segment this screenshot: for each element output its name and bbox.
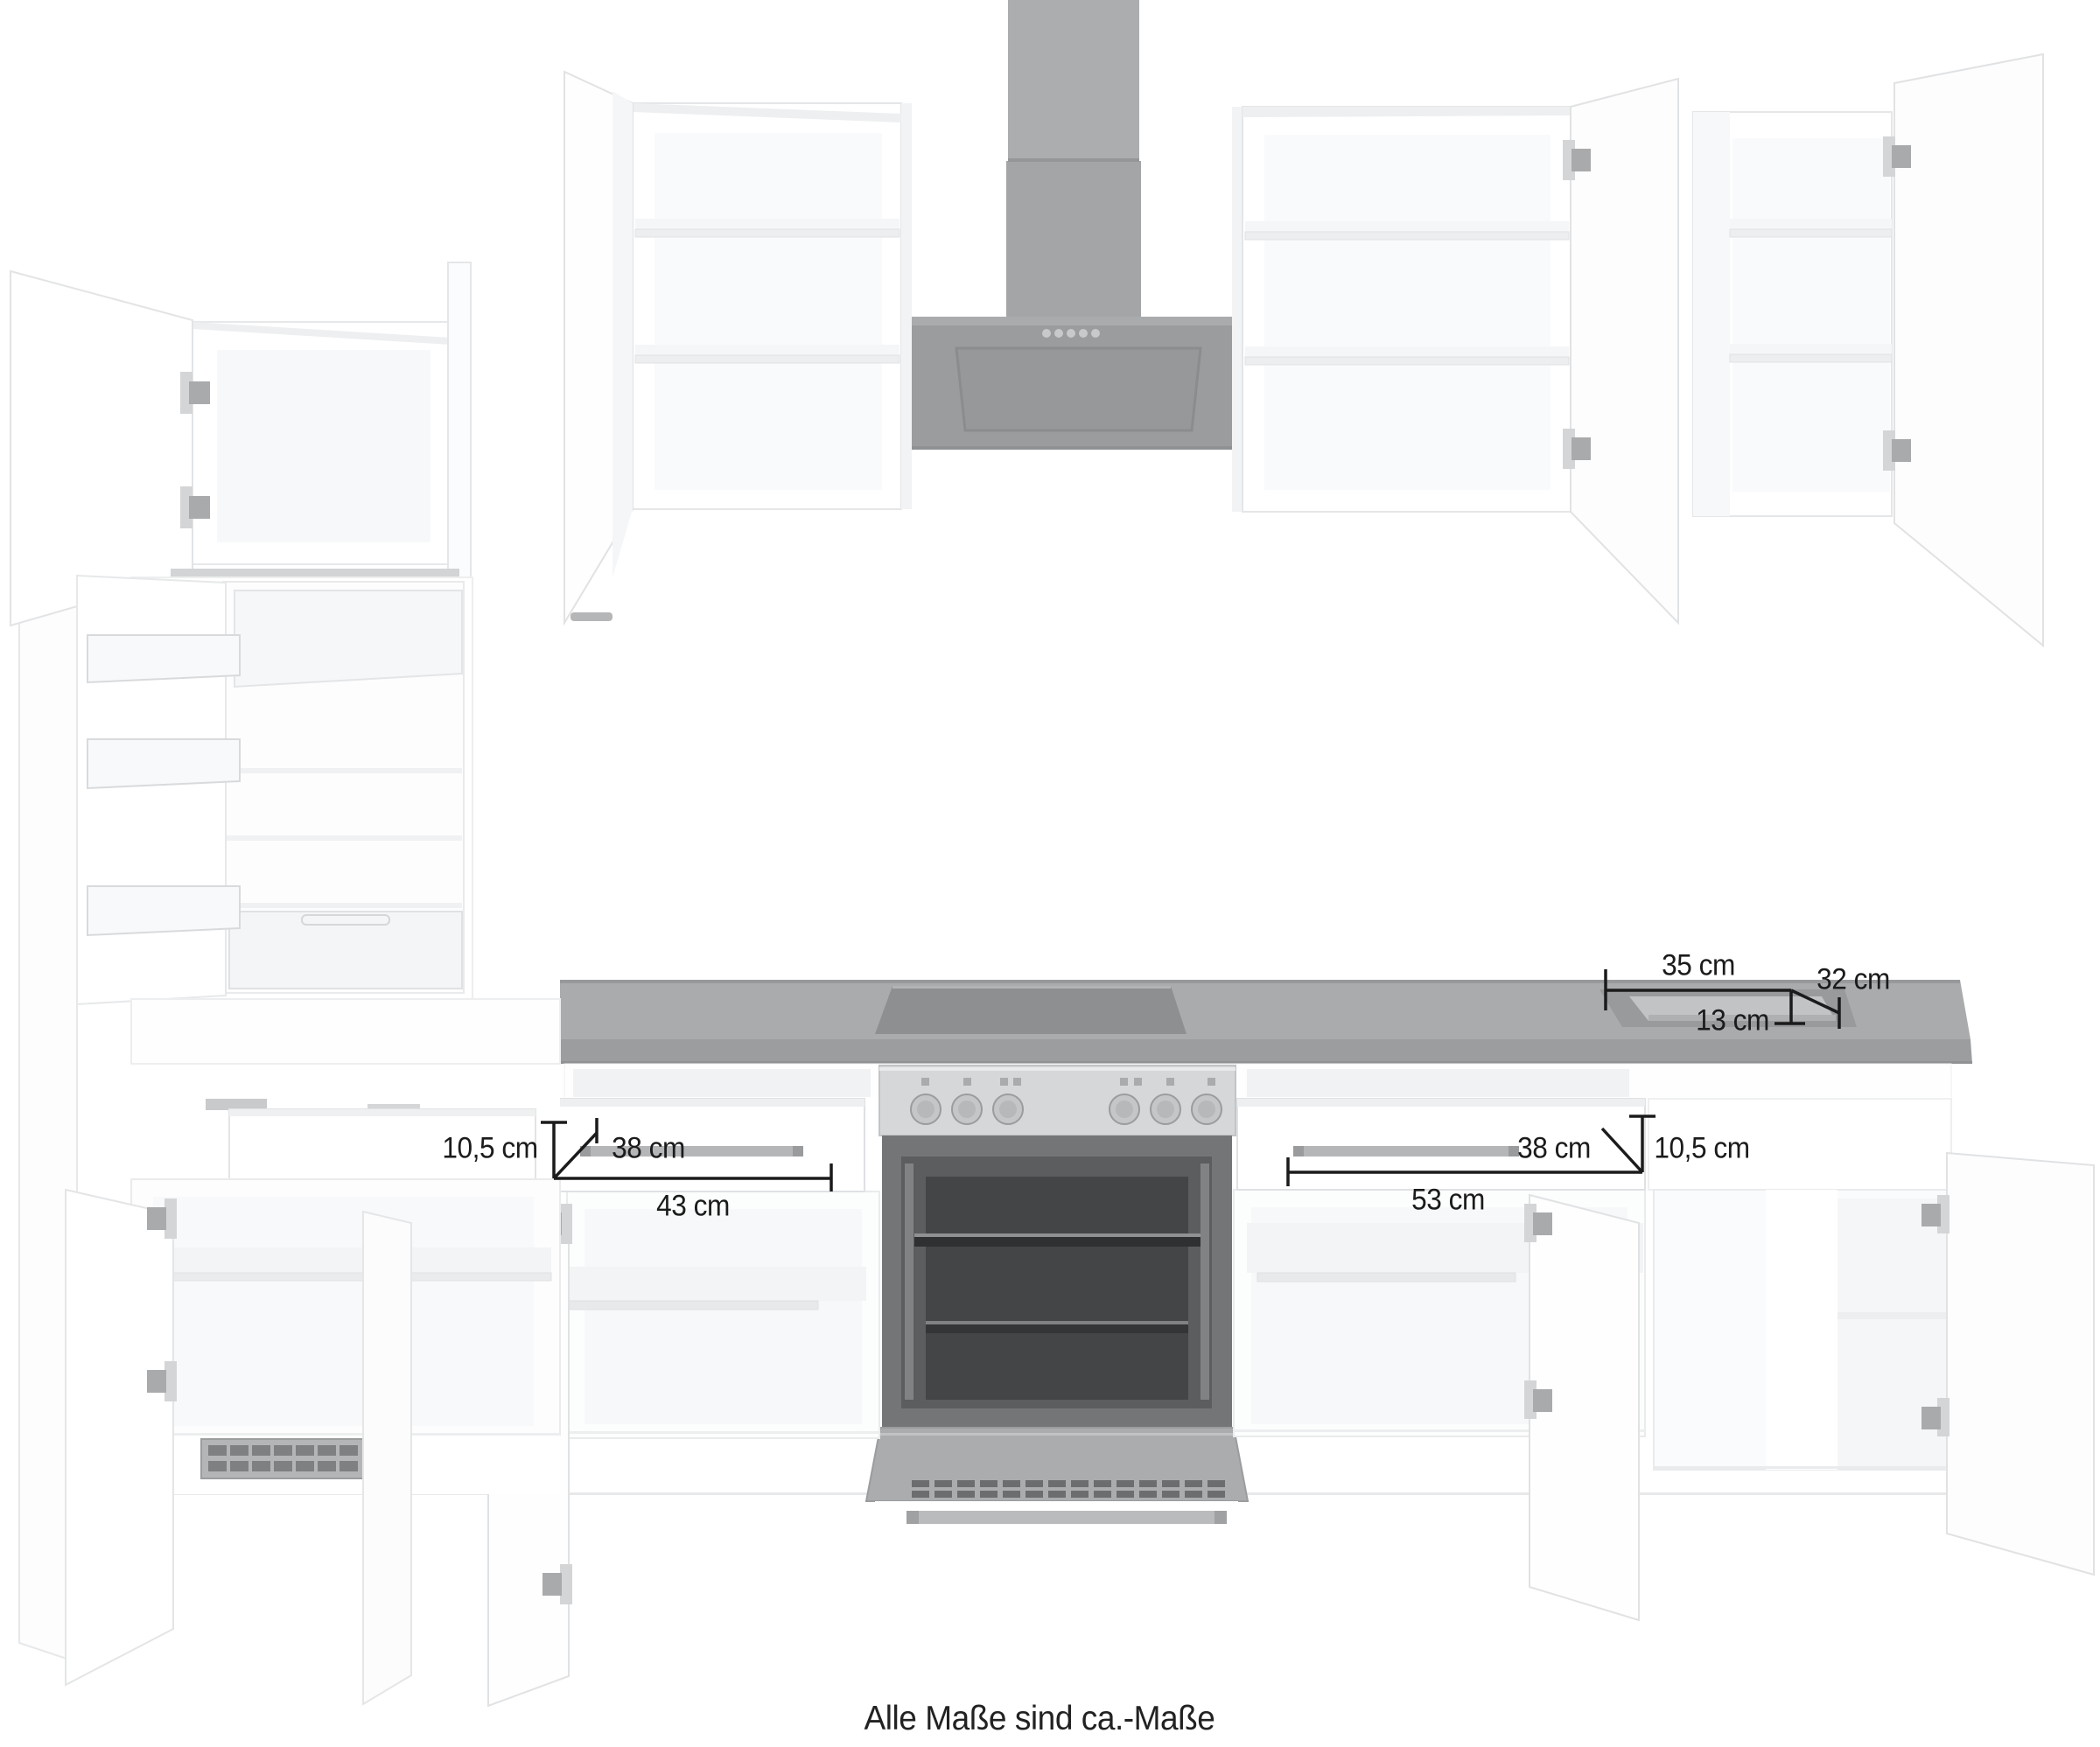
dim-label-left-front-width: 43 cm bbox=[656, 1190, 730, 1224]
knob bbox=[993, 1094, 1023, 1124]
open-door-edge bbox=[363, 1212, 411, 1704]
freezer-compartment bbox=[234, 590, 462, 687]
dim-label-right-handle: 38 cm bbox=[1517, 1132, 1591, 1166]
dim-label-right-front-height: 10,5 cm bbox=[1654, 1132, 1749, 1166]
shelf bbox=[1257, 1273, 1515, 1282]
open-door bbox=[1894, 54, 2043, 646]
shelf bbox=[1245, 232, 1569, 240]
cabinet-interior bbox=[153, 1197, 534, 1426]
knob bbox=[1192, 1094, 1221, 1124]
kitchen-illustration bbox=[0, 0, 2100, 1747]
product-image: 35 cm 32 cm 13 cm 10,5 cm 38 cm 43 cm 38… bbox=[0, 0, 2100, 1747]
counter-front-edge bbox=[535, 1039, 1972, 1064]
fridge bbox=[77, 576, 472, 1004]
sink-base-cabinet bbox=[1648, 1099, 2094, 1575]
cabinet-interior bbox=[1264, 135, 1550, 490]
oven-rack bbox=[914, 1237, 1200, 1247]
range-hood bbox=[890, 0, 1258, 450]
dim-label-left-handle: 38 cm bbox=[612, 1132, 685, 1166]
wall-cabinet-left bbox=[564, 72, 912, 623]
cabinet-interior bbox=[584, 1209, 862, 1424]
fridge-shelf bbox=[226, 768, 462, 773]
tall-cabinet-fridge-unit bbox=[10, 262, 560, 1704]
dim-label-sink-width: 35 cm bbox=[1662, 949, 1735, 983]
shelf bbox=[1837, 1312, 1949, 1319]
drawer-cavity bbox=[1247, 1069, 1629, 1097]
dim-label-right-front-width: 53 cm bbox=[1411, 1184, 1485, 1218]
knob bbox=[1109, 1094, 1139, 1124]
oven-door-open bbox=[866, 1428, 1248, 1501]
oven-cavity bbox=[926, 1177, 1188, 1400]
hood-chimney-lower bbox=[1006, 161, 1141, 336]
shelf bbox=[1730, 354, 1892, 362]
dim-label-sink-front-offset: 13 cm bbox=[1696, 1004, 1769, 1038]
wall-cabinet-right-2 bbox=[1693, 54, 2043, 646]
drawer-handle bbox=[1293, 1146, 1519, 1157]
dim-label-sink-depth: 32 cm bbox=[1816, 963, 1890, 997]
oven-rack bbox=[926, 1324, 1188, 1333]
open-door bbox=[66, 1190, 173, 1685]
shelf bbox=[1245, 357, 1569, 365]
cabinet-interior bbox=[1732, 138, 1890, 492]
plinth-vent-grille bbox=[201, 1439, 363, 1478]
open-door bbox=[1947, 1153, 2094, 1575]
fridge-shelf bbox=[226, 835, 462, 841]
hood-panel bbox=[956, 348, 1200, 430]
cabinet-interior bbox=[217, 350, 430, 542]
fridge-shelf bbox=[226, 903, 462, 908]
drawer-cavity bbox=[573, 1069, 871, 1097]
cooktop bbox=[875, 986, 1186, 1034]
caption: Alle Maße sind ca.-Maße bbox=[864, 1700, 1215, 1738]
hood-chimney-upper bbox=[1008, 0, 1139, 161]
open-door bbox=[10, 271, 192, 625]
shelf bbox=[1730, 229, 1892, 237]
knob bbox=[1151, 1094, 1180, 1124]
shelf bbox=[635, 229, 899, 237]
door-handle bbox=[570, 612, 612, 621]
cabinet-interior bbox=[654, 133, 882, 490]
knob bbox=[952, 1094, 982, 1124]
shelf bbox=[635, 355, 899, 363]
oven bbox=[866, 1066, 1248, 1540]
dim-label-left-front-height: 10,5 cm bbox=[442, 1132, 537, 1166]
shelf bbox=[140, 1273, 551, 1281]
crisper-drawer bbox=[229, 912, 462, 989]
shelf bbox=[569, 1301, 818, 1310]
oven-door-handle bbox=[906, 1511, 1227, 1524]
wall-cabinet-right-1 bbox=[1232, 79, 1678, 623]
knob bbox=[911, 1094, 941, 1124]
